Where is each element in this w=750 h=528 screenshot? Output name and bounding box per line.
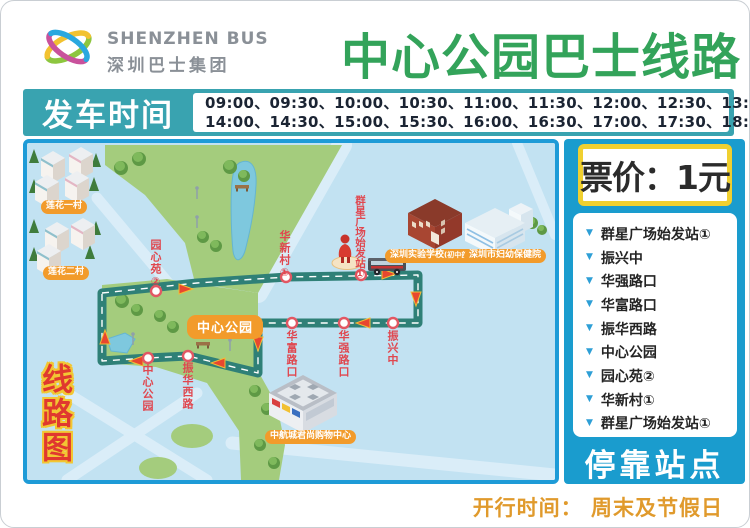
stop-item: ▼华强路口 — [586, 269, 737, 293]
stop-label-huaqiang: 华强路口 — [337, 330, 350, 378]
stop-item: ▼振华西路 — [586, 317, 737, 341]
stop-name: 华富路口 — [601, 295, 657, 315]
shenzhen-bus-logo-icon — [35, 16, 101, 78]
stop-label-huafu: 华富路口 — [285, 330, 298, 378]
stop-item: ▼振兴中 — [586, 246, 737, 270]
stop-name: 群星广场始发站① — [601, 413, 711, 433]
departure-times-bar: 发车时间 09:00、09:30、10:00、10:30、11:00、11:30… — [23, 89, 734, 136]
label-school: 深圳实验学校(初中部) — [385, 249, 476, 263]
stop-label-zhenhua-west: 振华西路 — [181, 362, 194, 410]
route-map: 莲花一村 莲花二村 深圳实验学校(初中部) 深圳市妇幼保健院 中航城君尚购物中心… — [23, 139, 559, 484]
stop-item: ▼群星广场始发站① — [586, 412, 737, 436]
stop-item: ▼华富路口 — [586, 293, 737, 317]
label-lianhua-village-2: 莲花二村 — [43, 266, 89, 280]
stop-item: ▼华新村① — [586, 388, 737, 412]
stop-label-zhenxing: 振兴中 — [386, 330, 399, 366]
bus-route-poster: SHENZHEN BUS 深圳巴士集团 中心公园巴士线路 发车时间 09:00、… — [0, 0, 750, 528]
fare-badge: 票价：1元 — [578, 144, 732, 206]
departure-times-label: 发车时间 — [23, 89, 193, 136]
triangle-down-icon: ▼ — [586, 300, 593, 309]
triangle-down-icon: ▼ — [586, 395, 593, 404]
label-school-name: 深圳实验学校 — [390, 250, 444, 260]
triangle-down-icon: ▼ — [586, 348, 593, 357]
route-map-side-label: 线路图 — [32, 363, 77, 465]
triangle-down-icon: ▼ — [586, 277, 593, 286]
triangle-down-icon: ▼ — [586, 229, 593, 238]
operating-time-note: 开行时间： 周末及节假日 — [473, 492, 723, 522]
departure-times-box: 09:00、09:30、10:00、10:30、11:00、11:30、12:0… — [193, 93, 729, 132]
central-park-badge: 中心公园 — [187, 315, 263, 339]
stop-name: 振兴中 — [601, 248, 643, 268]
stop-name: 中心公园 — [601, 342, 657, 362]
triangle-down-icon: ▼ — [586, 253, 593, 262]
stop-name: 华新村① — [601, 390, 655, 410]
stop-item: ▼群星广场始发站① — [586, 222, 737, 246]
brand-name-en: SHENZHEN BUS — [107, 29, 269, 49]
stop-label-central-park: 中心公园 — [141, 364, 154, 412]
times-line-2: 14:00、14:30、15:00、15:30、16:00、16:30、17:0… — [205, 113, 729, 132]
times-line-1: 09:00、09:30、10:00、10:30、11:00、11:30、12:0… — [205, 94, 729, 113]
stop-name: 园心苑② — [601, 366, 655, 386]
stop-name: 振华西路 — [601, 319, 657, 339]
stop-name: 华强路口 — [601, 271, 657, 291]
triangle-down-icon: ▼ — [586, 324, 593, 333]
triangle-down-icon: ▼ — [586, 419, 593, 428]
brand-name-cn: 深圳巴士集团 — [107, 51, 230, 76]
stop-item: ▼园心苑② — [586, 364, 737, 388]
label-mall: 中航城君尚购物中心 — [265, 430, 356, 444]
label-lianhua-village-1: 莲花一村 — [41, 200, 87, 214]
stops-panel-title: 停靠站点 — [564, 440, 745, 485]
stops-sidebar: 票价：1元 ▼群星广场始发站① ▼振兴中 ▼华强路口 ▼华富路口 ▼振华西路 ▼… — [564, 139, 745, 484]
stops-list: ▼群星广场始发站① ▼振兴中 ▼华强路口 ▼华富路口 ▼振华西路 ▼中心公园 ▼… — [573, 213, 737, 437]
stop-item: ▼中心公园 — [586, 340, 737, 364]
page-title: 中心公园巴士线路 — [331, 18, 741, 89]
label-hospital: 深圳市妇幼保健院 — [464, 249, 546, 263]
stop-name: 群星广场始发站① — [601, 224, 711, 244]
triangle-down-icon: ▼ — [586, 371, 593, 380]
stop-label-huaxincun: 华新村① — [278, 230, 291, 280]
stop-label-yuanxinyuan: 园心苑② — [149, 239, 162, 289]
stop-label-qunxing-start: 群星广场始发站① — [353, 195, 366, 281]
